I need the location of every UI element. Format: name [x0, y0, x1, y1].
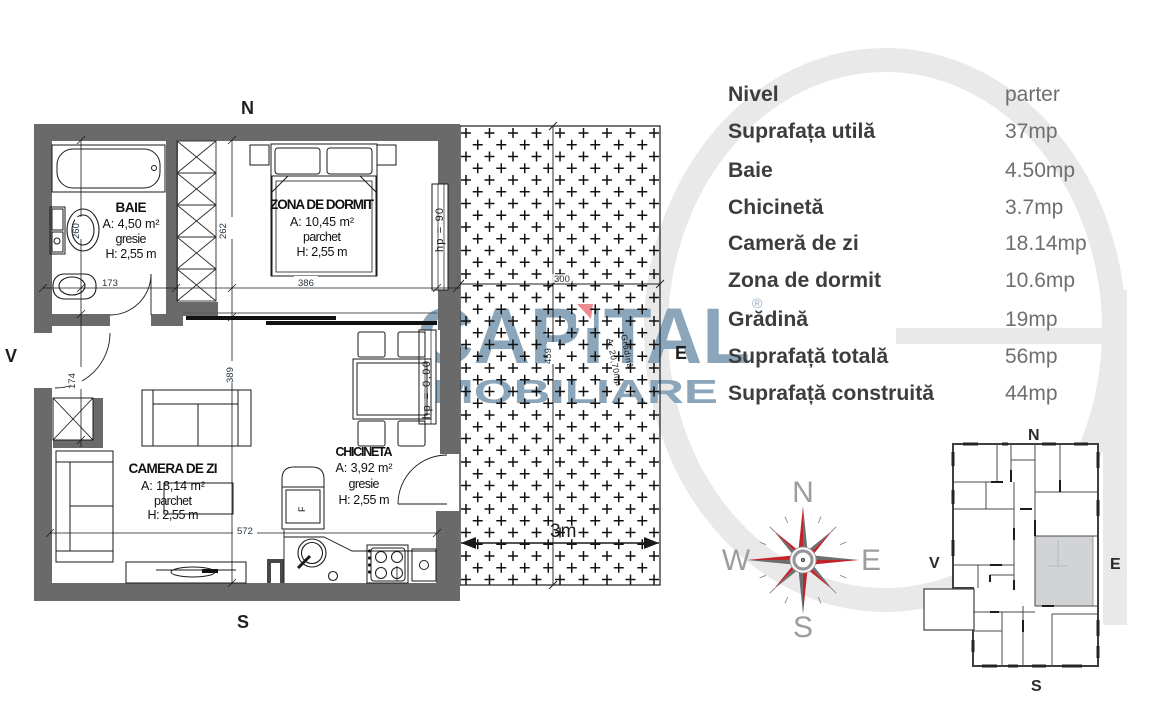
svg-text:A: 3,92 m²: A: 3,92 m² [336, 461, 393, 475]
svg-text:37mp: 37mp [1005, 120, 1058, 143]
svg-text:S: S [793, 611, 813, 644]
svg-text:300: 300 [554, 274, 570, 285]
svg-text:Suprafață construită: Suprafață construită [728, 382, 934, 405]
svg-text:A: 18,14 m²: A: 18,14 m² [141, 479, 205, 493]
svg-text:CHICINETA: CHICINETA [336, 445, 393, 459]
svg-text:N: N [1028, 427, 1040, 444]
svg-text:3m: 3m [550, 521, 576, 542]
svg-text:3.7mp: 3.7mp [1005, 196, 1063, 219]
svg-text:H: 2,55 m: H: 2,55 m [297, 245, 348, 259]
svg-text:Baie: Baie [728, 159, 773, 182]
svg-text:H: 2,55 m: H: 2,55 m [106, 247, 157, 261]
svg-text:386: 386 [298, 278, 314, 289]
svg-text:V: V [929, 555, 940, 572]
svg-text:10.6mp: 10.6mp [1005, 269, 1075, 292]
svg-text:A: 4,50 m²: A: 4,50 m² [103, 217, 160, 231]
svg-text:E: E [675, 343, 687, 363]
svg-text:E: E [861, 544, 881, 577]
svg-text:Nivel: Nivel [728, 83, 779, 106]
svg-text:gresie: gresie [349, 477, 380, 491]
svg-text:V: V [5, 346, 17, 366]
svg-text:parter: parter [1005, 83, 1060, 106]
svg-text:N: N [792, 476, 814, 509]
svg-text:Chicinetă: Chicinetă [728, 196, 824, 219]
svg-text:gresie: gresie [116, 232, 147, 246]
svg-text:A: 10,45 m²: A: 10,45 m² [290, 215, 354, 229]
svg-text:18.14mp: 18.14mp [1005, 232, 1087, 255]
svg-text:174: 174 [67, 373, 78, 389]
svg-text:parchet: parchet [154, 494, 193, 508]
svg-text:S: S [237, 612, 249, 632]
svg-text:F: F [297, 506, 307, 512]
svg-text:Suprafața utilă: Suprafața utilă [728, 120, 875, 143]
svg-text:572: 572 [237, 526, 253, 537]
svg-text:hp = 90: hp = 90 [434, 208, 446, 252]
svg-text:260: 260 [71, 223, 82, 239]
svg-text:Zona de dormit: Zona de dormit [728, 269, 881, 292]
svg-text:56mp: 56mp [1005, 345, 1058, 368]
svg-text:459: 459 [543, 348, 554, 364]
svg-text:S: S [1031, 678, 1042, 695]
svg-text:Grădină: Grădină [728, 308, 808, 331]
svg-text:CAMERA DE ZI: CAMERA DE ZI [129, 461, 218, 476]
svg-text:BAIE: BAIE [116, 200, 147, 215]
svg-text:4.50mp: 4.50mp [1005, 159, 1075, 182]
svg-text:44mp: 44mp [1005, 382, 1058, 405]
svg-text:E: E [1110, 556, 1121, 573]
svg-text:ZONA DE DORMIT: ZONA DE DORMIT [270, 197, 375, 212]
svg-text:Suprafață totală: Suprafață totală [728, 345, 888, 368]
svg-text:19mp: 19mp [1005, 308, 1058, 331]
svg-text:W: W [722, 544, 751, 577]
svg-text:H: 2,55 m: H: 2,55 m [339, 493, 390, 507]
svg-text:262: 262 [218, 223, 229, 239]
svg-text:N: N [241, 98, 254, 118]
svg-text:H: 2,55 m: H: 2,55 m [148, 508, 199, 522]
svg-text:parchet: parchet [303, 230, 342, 244]
svg-text:Cameră de zi: Cameră de zi [728, 232, 859, 255]
svg-text:389: 389 [225, 367, 236, 383]
svg-text:173: 173 [102, 278, 118, 289]
